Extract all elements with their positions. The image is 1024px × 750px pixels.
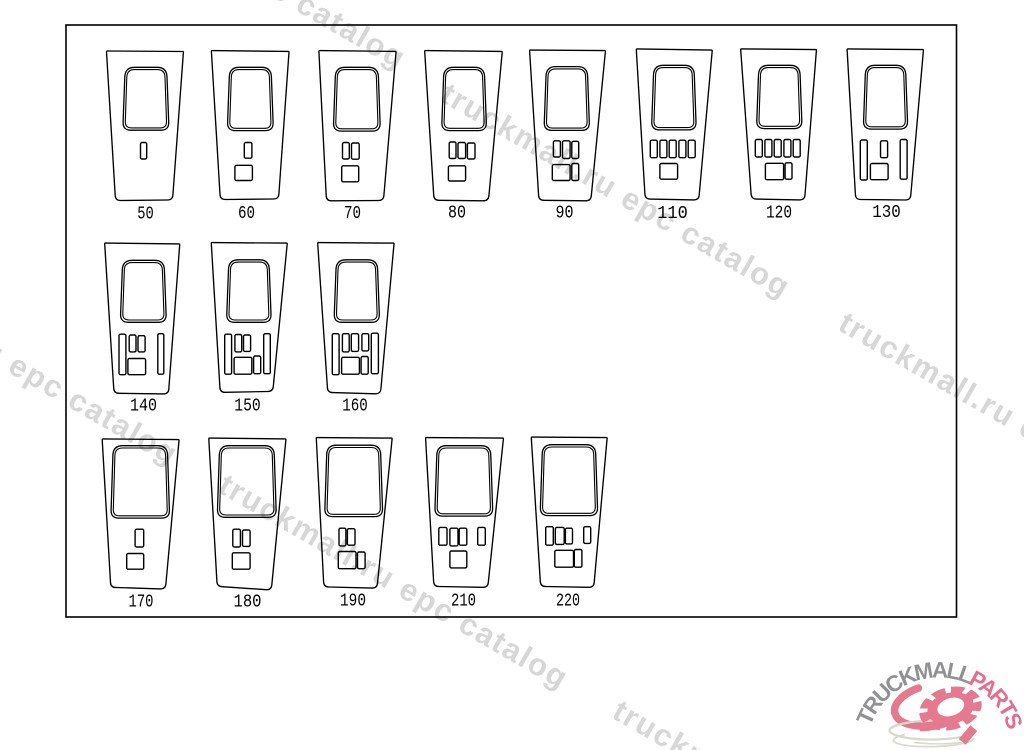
svg-text:150: 150 [234, 397, 261, 417]
svg-text:truckmall.ru epc catalog: truckmall.ru epc catalog [213, 467, 573, 695]
svg-text:170: 170 [129, 593, 154, 613]
svg-text:130: 130 [872, 203, 901, 223]
svg-text:80: 80 [448, 204, 466, 224]
svg-text:140: 140 [130, 397, 157, 417]
svg-text:160: 160 [342, 397, 368, 417]
svg-text:70: 70 [344, 204, 361, 224]
svg-text:truckmall.ru epc catalog: truckmall.ru epc catalog [833, 305, 1024, 533]
svg-text:180: 180 [234, 593, 262, 613]
svg-text:120: 120 [766, 204, 792, 224]
svg-text:190: 190 [340, 592, 366, 612]
svg-text:110: 110 [657, 204, 688, 224]
svg-text:220: 220 [556, 592, 580, 612]
svg-text:210: 210 [451, 592, 476, 612]
svg-text:50: 50 [137, 205, 154, 225]
svg-text:truckmall.ru epc catalog: truckmall.ru epc catalog [51, 0, 411, 75]
svg-text:truckmall.ru epc catalog: truckmall.ru epc catalog [0, 243, 183, 471]
svg-text:60: 60 [238, 204, 255, 224]
svg-text:90: 90 [556, 204, 574, 224]
